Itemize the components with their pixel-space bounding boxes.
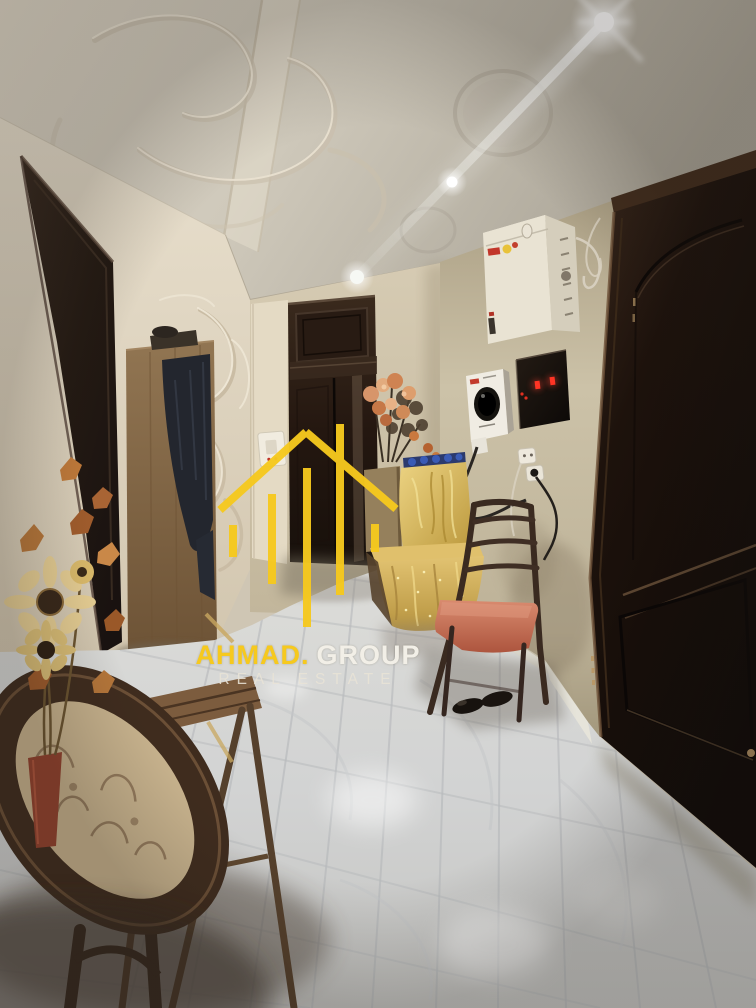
- hallway-photo-illustration: [0, 0, 756, 1008]
- vignette: [0, 0, 756, 1008]
- listing-photo: AHMAD.GROUP REAL ESTATE: [0, 0, 756, 1008]
